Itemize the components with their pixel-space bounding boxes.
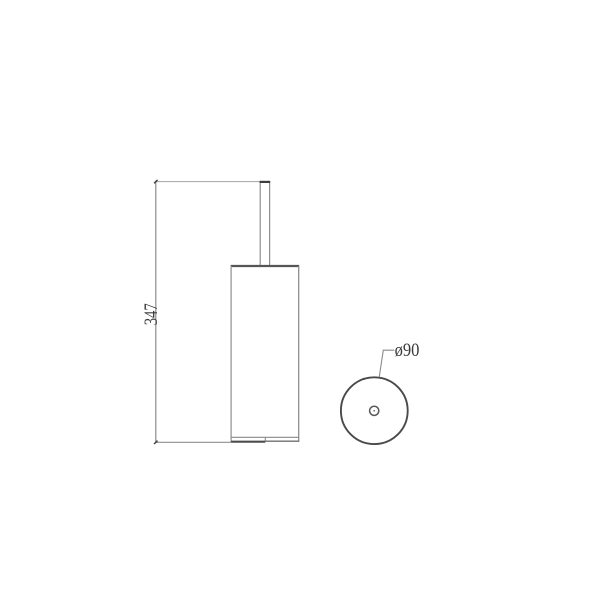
svg-text:ø90: ø90 <box>395 340 420 361</box>
svg-text:347: 347 <box>141 303 162 325</box>
